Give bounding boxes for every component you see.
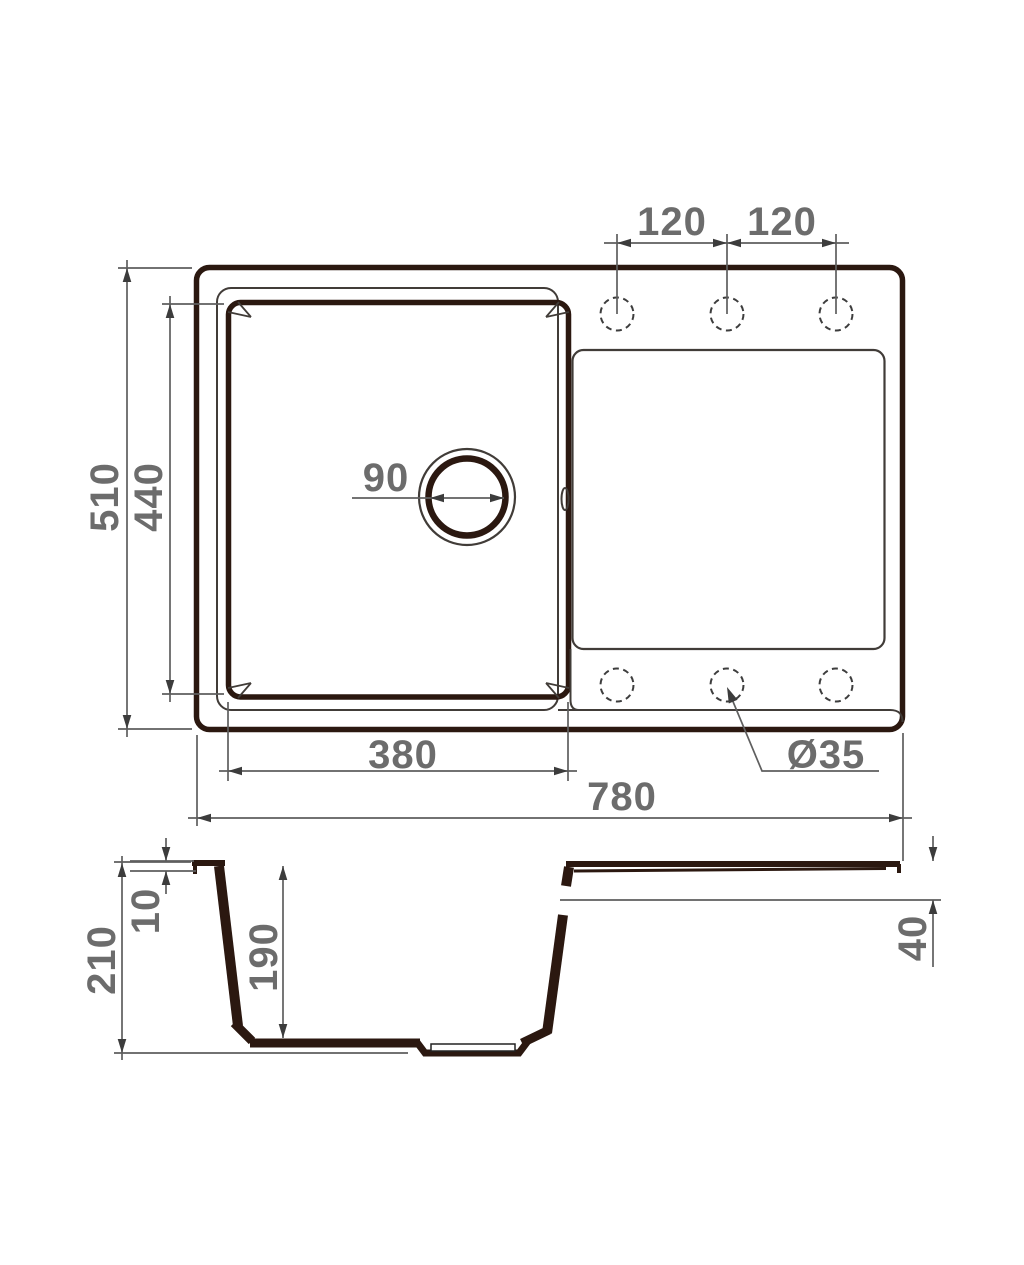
- dim-90-label: 90: [363, 456, 410, 500]
- faucet-hole-bottom-center: [711, 669, 744, 702]
- dim-780-arrow-right: [889, 814, 903, 823]
- dim-90-arrow-right: [490, 494, 504, 503]
- section-drain-slot: [431, 1044, 515, 1051]
- dim-40-label: 40: [891, 915, 935, 962]
- dim-380-arrow-left: [228, 767, 242, 776]
- dim-440-arrow-bottom: [166, 680, 175, 694]
- dim-120-arrow-b: [713, 239, 727, 248]
- dim-120-right-label: 120: [747, 200, 817, 244]
- dim-o35-arrow: [727, 687, 738, 704]
- section-drainboard-underside: [574, 869, 886, 872]
- dim-120-arrow-c: [727, 239, 741, 248]
- dim-120-arrow-a: [617, 239, 631, 248]
- front-deck-line: [558, 710, 903, 722]
- dim-440-label: 440: [127, 462, 171, 532]
- dim-120-lines: [604, 234, 849, 314]
- section-bowl-right-wall-upper: [566, 867, 569, 886]
- dim-40-lines: [560, 836, 941, 967]
- dim-780-arrow-left: [197, 814, 211, 823]
- dim-510-arrow-top: [123, 268, 132, 282]
- section-bowl-left-wall: [219, 866, 238, 1026]
- sink-outer-edge: [197, 268, 903, 730]
- faucet-holes: [601, 298, 853, 702]
- dim-10-lines: [130, 838, 196, 894]
- drawing-canvas: 120 120 510 440 90 380 780 Ø35: [0, 0, 1024, 1265]
- sink-technical-drawing: 120 120 510 440 90 380 780 Ø35: [0, 0, 1024, 1265]
- dim-780-label: 780: [587, 775, 657, 819]
- section-view: [192, 863, 900, 1053]
- dim-10-arrow-top: [162, 847, 171, 861]
- dim-10-arrow-bottom: [162, 871, 171, 885]
- dim-o35-label: Ø35: [787, 733, 866, 777]
- drainboard-outline: [573, 350, 885, 649]
- dim-40-arrow-top: [929, 847, 938, 861]
- dim-440-arrow-top: [166, 304, 175, 318]
- dim-510-label: 510: [83, 462, 127, 532]
- dim-190-arrow-bottom: [279, 1024, 288, 1038]
- section-bowl-floor: [234, 1023, 420, 1043]
- top-view: [197, 268, 903, 730]
- dim-210-arrow-top: [118, 863, 127, 877]
- dim-190-arrow-top: [279, 866, 288, 880]
- dim-210-label: 210: [80, 925, 124, 995]
- dim-210-arrow-bottom: [118, 1039, 127, 1053]
- dim-10-label: 10: [124, 888, 168, 935]
- dim-440-lines: [162, 296, 224, 702]
- bowl-corner-wedges: [228, 302, 569, 698]
- dim-120-arrow-d: [822, 239, 836, 248]
- drainboard-left-edge: [571, 649, 580, 710]
- top-view-dimensions: 120 120 510 440 90 380 780 Ø35: [83, 200, 912, 861]
- faucet-hole-bottom-right: [820, 669, 853, 702]
- dim-380-label: 380: [368, 733, 438, 777]
- dim-90-arrow-left: [430, 494, 444, 503]
- faucet-hole-bottom-left: [601, 669, 634, 702]
- dim-40-arrow-bottom: [929, 900, 938, 914]
- dim-120-left-label: 120: [637, 200, 707, 244]
- section-bowl-right-wall-lower: [547, 915, 563, 1033]
- dim-190-label: 190: [242, 922, 286, 992]
- dim-380-arrow-right: [554, 767, 568, 776]
- dim-510-arrow-bottom: [123, 715, 132, 729]
